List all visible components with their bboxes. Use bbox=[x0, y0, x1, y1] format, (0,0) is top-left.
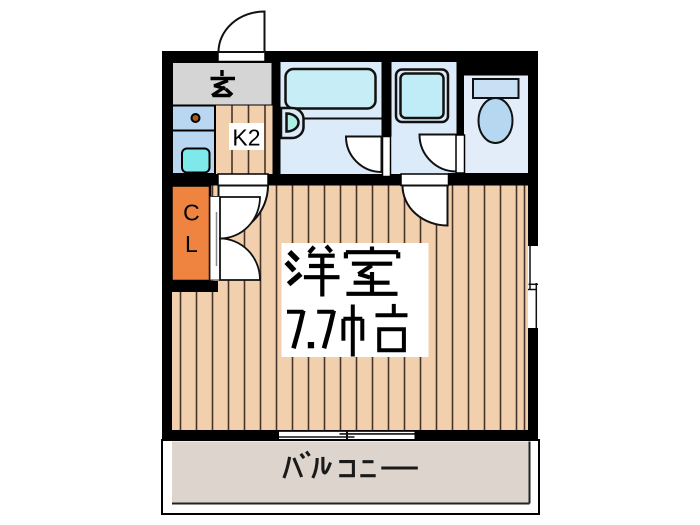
svg-text:C: C bbox=[183, 200, 200, 226]
svg-text:L: L bbox=[185, 231, 198, 257]
svg-text:K2: K2 bbox=[232, 125, 260, 151]
